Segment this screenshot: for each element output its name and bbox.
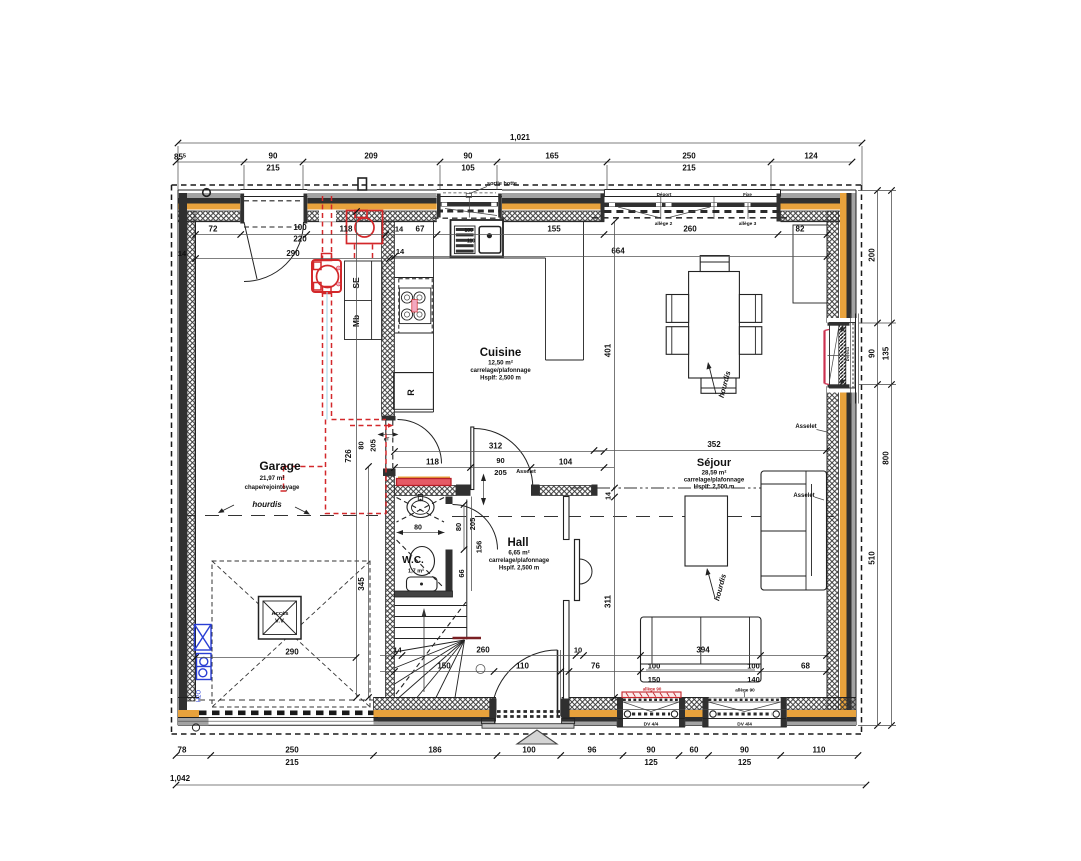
svg-text:118: 118 xyxy=(340,225,353,234)
svg-text:124: 124 xyxy=(804,152,818,161)
svg-text:110: 110 xyxy=(516,662,529,671)
svg-text:90: 90 xyxy=(740,746,749,755)
svg-text:90: 90 xyxy=(269,152,278,161)
svg-text:260: 260 xyxy=(476,646,490,655)
svg-text:100: 100 xyxy=(465,228,474,234)
svg-text:105: 105 xyxy=(461,164,475,173)
svg-text:90: 90 xyxy=(464,152,473,161)
svg-text:90: 90 xyxy=(868,349,877,358)
svg-text:90: 90 xyxy=(647,746,656,755)
svg-text:SE: SE xyxy=(351,277,361,289)
svg-text:10: 10 xyxy=(574,646,582,655)
svg-text:carrelage/plafonnage: carrelage/plafonnage xyxy=(684,478,745,484)
svg-text:290: 290 xyxy=(286,249,300,258)
svg-text:215: 215 xyxy=(682,164,696,173)
svg-text:76: 76 xyxy=(591,662,600,671)
svg-text:chape/rejointoyage: chape/rejointoyage xyxy=(245,485,300,491)
svg-text:96: 96 xyxy=(588,746,597,755)
svg-text:125: 125 xyxy=(644,758,658,767)
svg-text:DV 9/13: DV 9/13 xyxy=(845,346,850,361)
svg-text:250: 250 xyxy=(285,746,299,755)
svg-text:220: 220 xyxy=(293,235,307,244)
svg-text:80: 80 xyxy=(357,441,366,449)
svg-text:118: 118 xyxy=(426,458,439,467)
svg-text:allège 2: allège 2 xyxy=(655,221,673,227)
svg-text:135: 135 xyxy=(882,346,891,360)
svg-text:1,042: 1,042 xyxy=(170,774,191,783)
svg-text:100: 100 xyxy=(522,746,536,755)
svg-text:V.V.: V.V. xyxy=(275,619,285,625)
svg-text:1,021: 1,021 xyxy=(510,133,531,142)
svg-text:øT: øT xyxy=(384,437,390,442)
svg-text:Hall: Hall xyxy=(507,537,528,549)
svg-text:510: 510 xyxy=(868,551,877,565)
svg-text:Séjour: Séjour xyxy=(697,457,732,469)
svg-text:78: 78 xyxy=(178,746,187,755)
svg-text:215: 215 xyxy=(285,758,299,767)
svg-text:664: 664 xyxy=(611,247,625,256)
svg-text:Hsplf: 2,500 m: Hsplf: 2,500 m xyxy=(694,485,735,491)
svg-text:394: 394 xyxy=(696,646,710,655)
svg-text:165: 165 xyxy=(545,152,559,161)
svg-text:Hsplf: 2,500 m: Hsplf: 2,500 m xyxy=(480,376,521,382)
svg-text:352: 352 xyxy=(707,440,721,449)
svg-text:hourdis: hourdis xyxy=(252,500,282,509)
svg-text:DV 4/4: DV 4/4 xyxy=(737,722,752,728)
svg-text:215: 215 xyxy=(266,164,280,173)
svg-text:100: 100 xyxy=(293,223,307,232)
svg-text:66: 66 xyxy=(457,569,466,577)
svg-text:14: 14 xyxy=(606,492,613,500)
svg-text:14: 14 xyxy=(393,646,402,655)
svg-text:200: 200 xyxy=(868,248,877,262)
svg-text:14: 14 xyxy=(395,225,404,234)
svg-text:14: 14 xyxy=(396,247,405,256)
svg-text:sortie hotte: sortie hotte xyxy=(487,181,517,187)
svg-text:311: 311 xyxy=(604,594,613,607)
svg-text:Cuisine: Cuisine xyxy=(480,347,522,359)
svg-text:209: 209 xyxy=(364,152,378,161)
svg-text:312: 312 xyxy=(489,442,503,451)
svg-text:80: 80 xyxy=(414,525,422,532)
svg-text:150: 150 xyxy=(437,662,451,671)
svg-text:150: 150 xyxy=(648,675,661,684)
svg-text:68: 68 xyxy=(801,662,810,671)
svg-text:726: 726 xyxy=(344,449,353,463)
svg-text:Asselet: Asselet xyxy=(516,469,536,475)
svg-text:100: 100 xyxy=(747,662,760,671)
svg-text:allège 90: allège 90 xyxy=(643,687,662,692)
svg-text:290: 290 xyxy=(285,648,299,657)
svg-text:800: 800 xyxy=(882,451,891,465)
svg-text:186: 186 xyxy=(428,746,442,755)
svg-text:205: 205 xyxy=(494,468,507,477)
svg-text:80: 80 xyxy=(454,523,463,531)
svg-text:Déport: Déport xyxy=(657,192,672,197)
svg-text:21,97 m²: 21,97 m² xyxy=(260,475,285,482)
svg-text:67: 67 xyxy=(416,225,425,234)
svg-text:82: 82 xyxy=(796,225,805,234)
svg-text:allège 90: allège 90 xyxy=(735,688,755,693)
svg-text:Asselet: Asselet xyxy=(793,493,814,499)
svg-text:W.C.: W.C. xyxy=(402,555,424,566)
svg-text:100: 100 xyxy=(648,662,661,671)
svg-text:H2O: H2O xyxy=(197,690,203,703)
svg-text:28,59 m²: 28,59 m² xyxy=(702,470,727,477)
svg-text:Hsplf. 2,500 m: Hsplf. 2,500 m xyxy=(499,566,539,572)
svg-text:carrelage/plafonnage: carrelage/plafonnage xyxy=(489,558,550,564)
svg-text:345: 345 xyxy=(357,577,366,591)
svg-text:allège 3: allège 3 xyxy=(739,221,757,227)
svg-text:156: 156 xyxy=(475,541,484,554)
svg-text:DV 4/4: DV 4/4 xyxy=(644,722,659,728)
svg-text:401: 401 xyxy=(604,343,613,357)
svg-text:Mb: Mb xyxy=(351,315,361,327)
svg-text:260: 260 xyxy=(683,225,697,234)
svg-text:Fixe: Fixe xyxy=(743,192,752,197)
svg-text:110: 110 xyxy=(467,238,475,244)
svg-text:205: 205 xyxy=(468,518,477,531)
svg-text:155: 155 xyxy=(547,225,561,234)
svg-text:Garage: Garage xyxy=(259,459,301,473)
svg-text:12,50 m²: 12,50 m² xyxy=(488,360,513,367)
svg-text:60: 60 xyxy=(690,746,699,755)
svg-text:104: 104 xyxy=(559,458,573,467)
svg-text:6,65 m²: 6,65 m² xyxy=(508,550,529,557)
svg-text:Accès: Accès xyxy=(271,611,288,617)
svg-text:110: 110 xyxy=(813,746,826,755)
svg-text:1,7 m²: 1,7 m² xyxy=(408,568,424,575)
svg-text:205: 205 xyxy=(369,439,378,452)
svg-text:125: 125 xyxy=(738,758,752,767)
svg-text:Asselet: Asselet xyxy=(795,424,816,430)
svg-text:14: 14 xyxy=(178,249,187,258)
svg-text:R: R xyxy=(406,389,416,396)
svg-text:140: 140 xyxy=(747,675,760,684)
svg-text:90: 90 xyxy=(496,456,504,465)
svg-text:250: 250 xyxy=(682,152,696,161)
svg-text:72: 72 xyxy=(209,225,218,234)
svg-text:carrelage/plafonnage: carrelage/plafonnage xyxy=(470,368,531,374)
